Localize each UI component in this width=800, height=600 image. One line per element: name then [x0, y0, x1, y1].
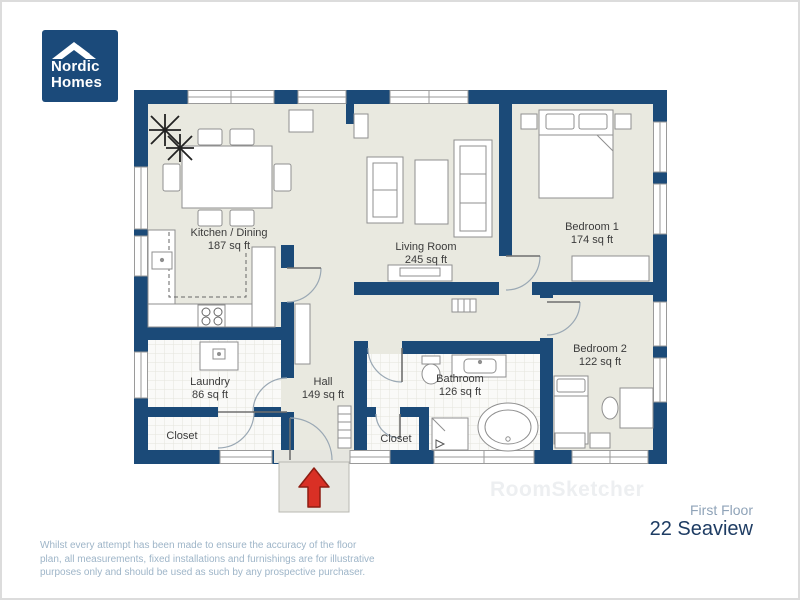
washing-machine-icon: [200, 342, 238, 370]
tv-unit: [388, 265, 452, 281]
page: Nordic Homes: [0, 0, 800, 600]
chest: [555, 433, 585, 448]
bathtub-icon: [478, 403, 538, 451]
disclaimer-text: Whilst every attempt has been made to en…: [40, 539, 380, 580]
sideboard: [289, 110, 313, 132]
room-area: 86 sq ft: [190, 389, 230, 402]
coffee-table: [415, 160, 448, 224]
room-name: Living Room: [395, 241, 456, 254]
room-name: Bedroom 2: [573, 343, 627, 356]
room-label-bedroom-2: Bedroom 2 122 sq ft: [573, 343, 627, 369]
room-area: 126 sq ft: [436, 386, 484, 399]
room-label-bathroom: Bathroom 126 sq ft: [436, 373, 484, 399]
armchair: [367, 157, 403, 223]
room-name: Kitchen / Dining: [190, 227, 267, 240]
room-name: Bathroom: [436, 373, 484, 386]
floor-label: First Floor: [650, 502, 753, 518]
stove-icon: [198, 305, 225, 327]
double-bed: [539, 110, 613, 198]
entrance-threshold: [274, 450, 350, 463]
room-area: 187 sq ft: [190, 240, 267, 253]
sofa: [454, 140, 492, 237]
roomsketcher-watermark: RoomSketcher: [490, 478, 644, 502]
shelf: [354, 114, 368, 138]
room-label-bedroom-1: Bedroom 1 174 sq ft: [565, 221, 619, 247]
room-name: Closet: [380, 433, 411, 446]
nightstand: [521, 114, 537, 129]
hall-cabinet: [295, 304, 310, 364]
room-label-hall: Hall 149 sq ft: [302, 376, 344, 402]
address-block: First Floor 22 Seaview: [650, 502, 753, 540]
kitchen-sink: [152, 252, 172, 269]
room-label-closet-right: Closet: [380, 433, 411, 446]
room-area: 149 sq ft: [302, 389, 344, 402]
room-name: Hall: [302, 376, 344, 389]
chest: [590, 433, 610, 448]
room-area: 245 sq ft: [395, 254, 456, 267]
room-name: Laundry: [190, 376, 230, 389]
address-label: 22 Seaview: [650, 518, 753, 540]
room-name: Bedroom 1: [565, 221, 619, 234]
room-area: 174 sq ft: [565, 234, 619, 247]
room-label-kitchen-dining: Kitchen / Dining 187 sq ft: [190, 227, 267, 253]
room-label-laundry: Laundry 86 sq ft: [190, 376, 230, 402]
room-name: Closet: [166, 430, 197, 443]
radiator-icon: [452, 299, 476, 312]
radiator-icon: [338, 406, 351, 448]
room-area: 122 sq ft: [573, 356, 627, 369]
room-label-living-room: Living Room 245 sq ft: [395, 241, 456, 267]
nightstand: [615, 114, 631, 129]
entrance-porch: [279, 462, 349, 512]
shower-icon: [432, 418, 468, 450]
room-label-closet-left: Closet: [166, 430, 197, 443]
dresser: [572, 256, 649, 281]
